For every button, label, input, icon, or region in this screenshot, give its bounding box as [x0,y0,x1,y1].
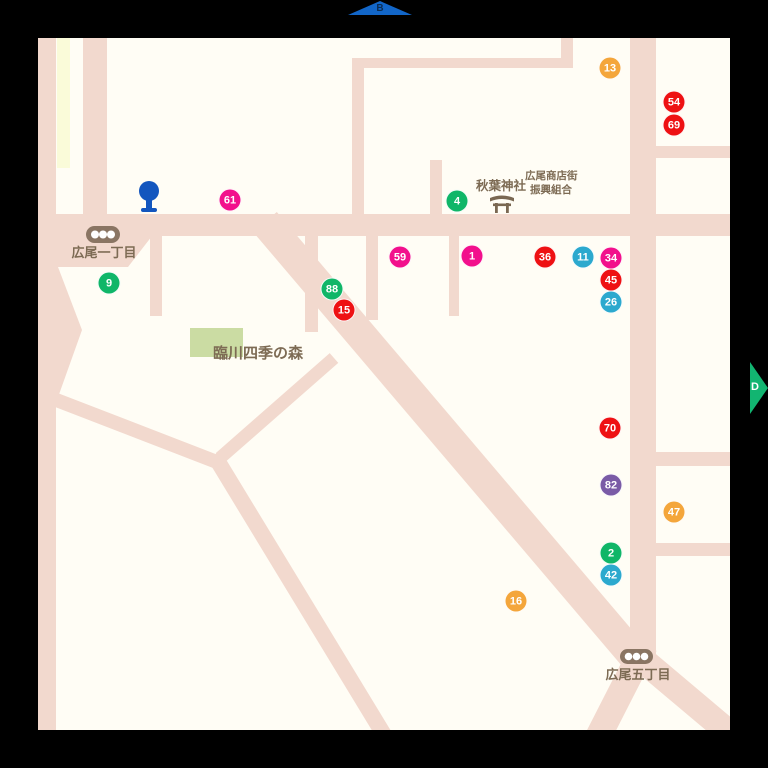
map-marker-45[interactable]: 45 [600,269,623,292]
map-marker-42[interactable]: 42 [600,564,623,587]
nav-arrow-right-label: D [751,381,759,393]
road-street-c [449,236,459,316]
map-marker-61[interactable]: 61 [219,189,242,212]
road-main-horizontal [38,214,730,236]
road-right-vertical [630,38,656,654]
nav-arrow-up[interactable]: B [348,1,412,15]
map-marker-88[interactable]: 88 [321,278,344,301]
nav-arrow-up-label: B [348,3,412,14]
map-marker-34[interactable]: 34 [600,247,623,270]
map-marker-1[interactable]: 1 [461,245,484,268]
map-marker-13[interactable]: 13 [599,57,622,80]
traffic-light-icon-se [620,649,653,664]
map-marker-15[interactable]: 15 [333,299,356,322]
roads-layer [0,0,768,768]
shrine-label: 秋葉神社 [476,180,526,194]
road-second-vertical [83,38,107,214]
road-street-b [366,236,378,320]
road-diagonal-south [214,455,392,748]
map-marker-47[interactable]: 47 [663,501,686,524]
road-diagonal-connector [220,358,334,458]
map-marker-11[interactable]: 11 [572,246,595,269]
road-diagonal-west [46,396,222,464]
map-marker-82[interactable]: 82 [600,474,623,497]
association-label-line1: 広尾商店街 [525,171,578,183]
road-street-d [150,236,162,316]
map-marker-26[interactable]: 26 [600,291,623,314]
road-branch-e1 [656,452,730,466]
map-marker-54[interactable]: 54 [663,91,686,114]
map-marker-2[interactable]: 2 [600,542,623,565]
map-marker-36[interactable]: 36 [534,246,557,269]
road-network [38,38,752,752]
torii-icon [490,196,514,214]
road-stub-top [561,38,573,66]
association-label-line2: 振興組合 [530,185,572,197]
nav-arrow-right[interactable]: D [750,362,768,414]
road-left-diagonal-band [38,267,82,400]
road-thin-horizontal-top [352,58,573,68]
map-marker-69[interactable]: 69 [663,114,686,137]
traffic-light-icon-nw [86,226,120,243]
map-marker-70[interactable]: 70 [599,417,622,440]
map-marker-59[interactable]: 59 [389,246,412,269]
park-label: 臨川四季の森 [213,346,303,363]
road-shrine-stub [430,160,442,216]
map-marker-9[interactable]: 9 [98,272,121,295]
intersection-label-nw: 広尾一丁目 [71,246,136,260]
intersection-label-se: 広尾五丁目 [605,668,670,682]
road-branch-ne [656,146,730,158]
map-stage: 広尾一丁目 広尾五丁目 秋葉神社 広尾商店街 振興組合 臨川四季の森 13546… [0,0,768,768]
bus-stop-icon [139,181,159,212]
map-marker-16[interactable]: 16 [505,590,528,613]
map-marker-4[interactable]: 4 [446,190,469,213]
road-branch-e2 [656,543,730,556]
road-thin-vertical-mid [352,58,364,218]
field-strip [57,38,70,168]
